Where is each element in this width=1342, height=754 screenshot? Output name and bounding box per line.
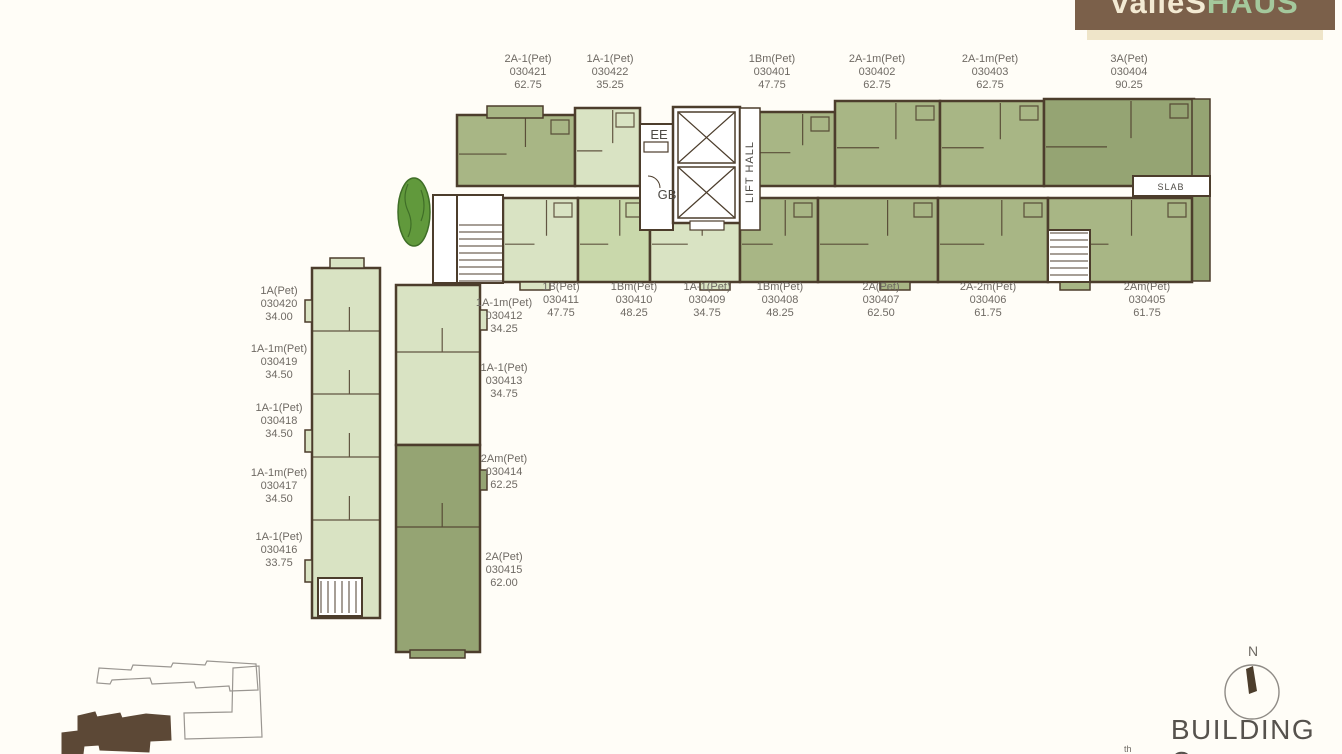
- planter-icon: [398, 178, 430, 246]
- unit-type: 2A(Pet): [485, 551, 522, 564]
- brand-name: valleSHAUS: [1075, 0, 1335, 21]
- unit-area: 34.75: [683, 307, 730, 320]
- unit-label: 2A-1(Pet)03042162.75: [504, 53, 551, 92]
- unit-area: 34.25: [476, 323, 532, 336]
- unit-number: 030410: [611, 294, 657, 307]
- site-building-c-highlight: [62, 712, 171, 754]
- unit-shape: [487, 106, 543, 118]
- unit-type: 1A-1(Pet): [586, 53, 633, 66]
- unit-label: 1A-1m(Pet)03041734.50: [251, 467, 307, 506]
- unit-shape: [312, 268, 380, 618]
- unit-shape: [758, 112, 835, 186]
- unit-area: 33.75: [255, 557, 302, 570]
- unit-shape: [1060, 282, 1090, 290]
- unit-area: 34.50: [255, 428, 302, 441]
- unit-area: 48.25: [757, 307, 803, 320]
- unit-type: 1A-1(Pet): [255, 531, 302, 544]
- unit-shape: [1044, 99, 1194, 186]
- unit-type: 2A(Pet): [862, 281, 899, 294]
- unit-area: 34.50: [251, 493, 307, 506]
- unit-type: 1B(Pet): [542, 281, 579, 294]
- lift-lobby-step: [690, 221, 724, 230]
- unit-type: 2Am(Pet): [1124, 281, 1170, 294]
- lift-core: [673, 107, 740, 223]
- unit-shape: [818, 198, 938, 282]
- building-name: BUILDING C: [1171, 714, 1315, 754]
- unit-area: 47.75: [749, 79, 795, 92]
- unit-type: 1A-1(Pet): [255, 402, 302, 415]
- site-map: [62, 661, 262, 754]
- unit-shape: [410, 650, 465, 658]
- unit-area: 62.50: [862, 307, 899, 320]
- unit-label: 1A-1(Pet)03040934.75: [683, 281, 730, 320]
- unit-area: 48.25: [611, 307, 657, 320]
- unit-type: 1Bm(Pet): [611, 281, 657, 294]
- unit-area: 35.25: [586, 79, 633, 92]
- brand-logo-strip: [1087, 30, 1323, 40]
- unit-label: 1B(Pet)03041147.75: [542, 281, 579, 320]
- unit-number: 030402: [849, 66, 905, 79]
- corner-corridor: [433, 195, 457, 283]
- unit-label: 1A-1(Pet)03041834.50: [255, 402, 302, 441]
- unit-type: 1A-1(Pet): [480, 362, 527, 375]
- unit-type: 2A-2m(Pet): [960, 281, 1016, 294]
- unit-number: 030401: [749, 66, 795, 79]
- unit-label: 1A-1m(Pet)03041934.50: [251, 343, 307, 382]
- unit-number: 030416: [255, 544, 302, 557]
- gb-label: GB: [658, 187, 677, 202]
- unit-shape: [305, 300, 312, 322]
- unit-number: 030418: [255, 415, 302, 428]
- unit-number: 030409: [683, 294, 730, 307]
- unit-shape: [330, 258, 364, 268]
- unit-type: 1Bm(Pet): [749, 53, 795, 66]
- unit-label: 1Bm(Pet)03040848.25: [757, 281, 803, 320]
- unit-label: 2Am(Pet)03041462.25: [481, 453, 527, 492]
- unit-type: 2Am(Pet): [481, 453, 527, 466]
- unit-area: 34.50: [251, 369, 307, 382]
- unit-type: 2A-1(Pet): [504, 53, 551, 66]
- unit-type: 1A-1m(Pet): [476, 297, 532, 310]
- unit-area: 34.00: [260, 311, 297, 324]
- unit-number: 030417: [251, 480, 307, 493]
- unit-type: 1A-1(Pet): [683, 281, 730, 294]
- unit-area: 61.75: [960, 307, 1016, 320]
- unit-label: 2A-1m(Pet)03040362.75: [962, 53, 1018, 92]
- unit-shape: [503, 198, 578, 282]
- unit-number: 030406: [960, 294, 1016, 307]
- unit-area: 61.75: [1124, 307, 1170, 320]
- unit-label: 2A(Pet)03041562.00: [485, 551, 522, 590]
- floor-plan: EE GB LIFT HALL SLAB: [0, 0, 1342, 754]
- unit-label: 2A-2m(Pet)03040661.75: [960, 281, 1016, 320]
- unit-area: 62.75: [504, 79, 551, 92]
- unit-number: 030412: [476, 310, 532, 323]
- unit-area: 62.00: [485, 577, 522, 590]
- unit-area: 34.75: [480, 388, 527, 401]
- unit-label: 3A(Pet)03040490.25: [1110, 53, 1147, 92]
- unit-label: 1A-1(Pet)03041334.75: [480, 362, 527, 401]
- unit-type: 2A-1m(Pet): [962, 53, 1018, 66]
- unit-area: 62.25: [481, 479, 527, 492]
- unit-number: 030408: [757, 294, 803, 307]
- unit-number: 030422: [586, 66, 633, 79]
- unit-label: 1A(Pet)03042034.00: [260, 285, 297, 324]
- unit-type: 1Bm(Pet): [757, 281, 803, 294]
- unit-shape: [396, 285, 480, 445]
- brand-logo: valleSHAUS: [1075, 0, 1335, 30]
- unit-shape: [457, 115, 575, 186]
- ee-cabinet: [644, 142, 668, 152]
- unit-number: 030414: [481, 466, 527, 479]
- unit-area: 62.75: [962, 79, 1018, 92]
- site-outline-wing: [184, 666, 262, 739]
- unit-area: 62.75: [849, 79, 905, 92]
- unit-type: 2A-1m(Pet): [849, 53, 905, 66]
- unit-label: 1Bm(Pet)03040147.75: [749, 53, 795, 92]
- unit-label: 1A-1m(Pet)03041234.25: [476, 297, 532, 336]
- unit-number: 030403: [962, 66, 1018, 79]
- unit-shape: [940, 101, 1044, 186]
- unit-type: 1A-1m(Pet): [251, 467, 307, 480]
- unit-area: 47.75: [542, 307, 579, 320]
- floorplan-page: EE GB LIFT HALL SLAB valleSHAUS 2A-1(Pet…: [0, 0, 1342, 754]
- brand-name-left: valleS: [1111, 0, 1207, 20]
- unit-shape: [305, 560, 312, 582]
- stairwell-west: [318, 578, 362, 616]
- unit-type: 3A(Pet): [1110, 53, 1147, 66]
- unit-shape: [396, 445, 480, 652]
- unit-number: 030419: [251, 356, 307, 369]
- unit-shape: [305, 430, 312, 452]
- unit-shape: [575, 108, 640, 186]
- unit-label: 1A-1(Pet)03042235.25: [586, 53, 633, 92]
- brand-name-right: HAUS: [1207, 0, 1299, 20]
- stairwell-right: [1048, 230, 1090, 282]
- unit-shape: [938, 198, 1048, 282]
- unit-area: 90.25: [1110, 79, 1147, 92]
- unit-label: 1A-1(Pet)03041633.75: [255, 531, 302, 570]
- unit-number: 030421: [504, 66, 551, 79]
- unit-number: 030404: [1110, 66, 1147, 79]
- lift-hall-label: LIFT HALL: [744, 141, 756, 203]
- unit-label: 2A-1m(Pet)03040262.75: [849, 53, 905, 92]
- unit-number: 030420: [260, 298, 297, 311]
- unit-shape: [835, 101, 940, 186]
- unit-number: 030415: [485, 564, 522, 577]
- ee-label: EE: [650, 127, 668, 142]
- unit-number: 030413: [480, 375, 527, 388]
- unit-label: 1Bm(Pet)03041048.25: [611, 281, 657, 320]
- unit-type: 1A(Pet): [260, 285, 297, 298]
- compass-north-label: N: [1248, 643, 1258, 659]
- unit-type: 1A-1m(Pet): [251, 343, 307, 356]
- unit-label: 2A(Pet)03040762.50: [862, 281, 899, 320]
- unit-number: 030405: [1124, 294, 1170, 307]
- unit-number: 030407: [862, 294, 899, 307]
- compass-icon: [1225, 665, 1279, 719]
- slab-label: SLAB: [1157, 182, 1184, 192]
- site-outline-building: [97, 661, 258, 691]
- unit-label: 2Am(Pet)03040561.75: [1124, 281, 1170, 320]
- storey-fragment: th: [1124, 744, 1132, 754]
- unit-number: 030411: [542, 294, 579, 307]
